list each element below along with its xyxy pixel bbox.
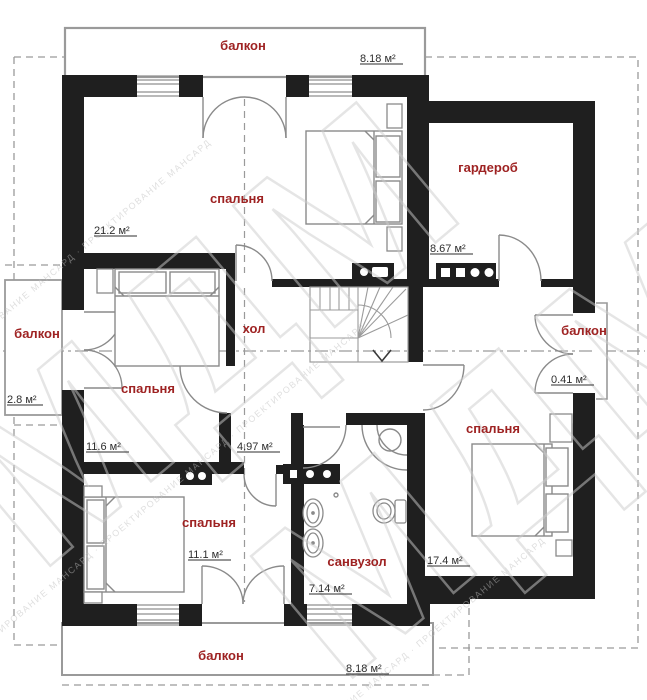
svg-text:4.97 м²: 4.97 м² — [237, 441, 273, 453]
svg-text:спальня: спальня — [466, 421, 520, 436]
svg-text:хол: хол — [243, 321, 266, 336]
svg-text:балкон: балкон — [14, 326, 60, 341]
svg-text:17.4 м²: 17.4 м² — [427, 555, 463, 567]
svg-text:11.1 м²: 11.1 м² — [188, 549, 223, 561]
svg-text:8.18 м²: 8.18 м² — [360, 53, 396, 65]
svg-text:8.67 м²: 8.67 м² — [430, 243, 466, 255]
svg-text:спальня: спальня — [182, 515, 236, 530]
svg-text:8.18 м²: 8.18 м² — [346, 663, 382, 675]
svg-text:0.41 м²: 0.41 м² — [551, 374, 587, 386]
svg-text:2.8 м²: 2.8 м² — [7, 394, 37, 406]
svg-text:гардероб: гардероб — [458, 160, 518, 175]
svg-text:7.14 м²: 7.14 м² — [309, 583, 345, 595]
svg-text:балкон: балкон — [220, 38, 266, 53]
svg-text:балкон: балкон — [198, 648, 244, 663]
svg-text:спальня: спальня — [210, 191, 264, 206]
svg-text:11.6 м²: 11.6 м² — [86, 441, 121, 453]
svg-text:спальня: спальня — [121, 381, 175, 396]
svg-text:балкон: балкон — [561, 323, 607, 338]
svg-text:21.2 м²: 21.2 м² — [94, 225, 130, 237]
svg-text:санвузол: санвузол — [327, 554, 386, 569]
